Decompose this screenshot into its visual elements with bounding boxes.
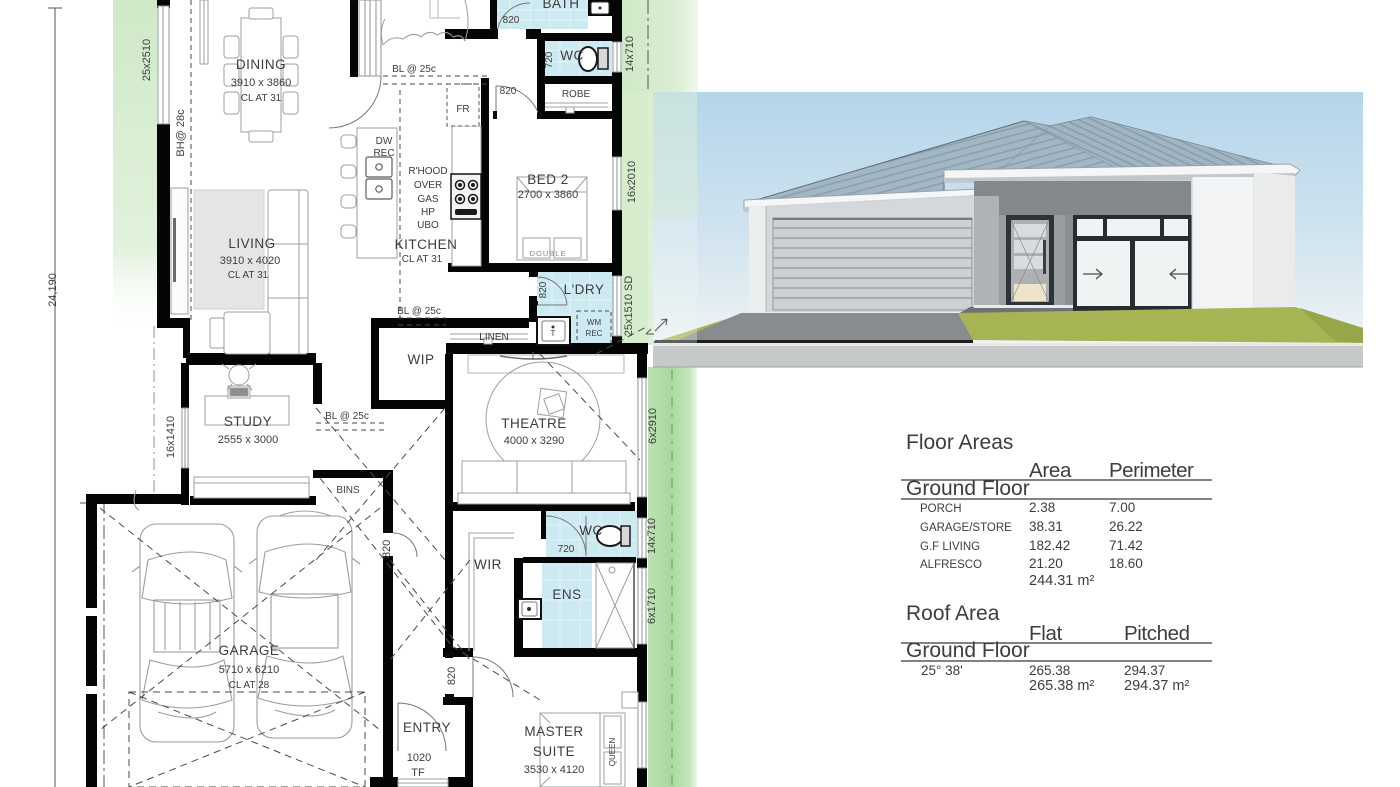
svg-text:265.38 m²: 265.38 m² xyxy=(1029,678,1094,694)
svg-text:26.22: 26.22 xyxy=(1109,519,1143,534)
svg-text:WIR: WIR xyxy=(474,557,502,572)
svg-text:ALFRESCO: ALFRESCO xyxy=(920,559,982,571)
svg-text:REC: REC xyxy=(373,148,394,159)
svg-text:3530 x 4120: 3530 x 4120 xyxy=(524,764,585,776)
svg-text:71.42: 71.42 xyxy=(1109,538,1143,553)
svg-text:Floor Areas: Floor Areas xyxy=(906,431,1013,454)
svg-text:244.31 m²: 244.31 m² xyxy=(1029,573,1094,589)
svg-text:BH@ 28c: BH@ 28c xyxy=(175,109,187,157)
svg-text:2700 x 3860: 2700 x 3860 xyxy=(518,189,579,201)
svg-text:5710 x 6210: 5710 x 6210 xyxy=(219,664,280,676)
svg-text:14x710: 14x710 xyxy=(646,518,658,554)
svg-text:LIVING: LIVING xyxy=(228,236,275,251)
svg-text:R'HOOD: R'HOOD xyxy=(408,166,447,177)
svg-text:DOUBLE: DOUBLE xyxy=(530,249,567,258)
svg-text:CL AT 31: CL AT 31 xyxy=(241,93,282,104)
svg-text:6x2910: 6x2910 xyxy=(647,408,659,444)
svg-text:STUDY: STUDY xyxy=(224,414,272,429)
svg-text:QUEEN: QUEEN xyxy=(608,738,617,767)
svg-text:820: 820 xyxy=(503,15,520,26)
svg-text:MASTER: MASTER xyxy=(524,724,583,739)
svg-text:3910 x 4020: 3910 x 4020 xyxy=(220,255,281,267)
svg-text:265.38: 265.38 xyxy=(1029,663,1070,678)
svg-text:1020: 1020 xyxy=(407,752,431,764)
svg-text:LINEN: LINEN xyxy=(479,332,508,343)
svg-text:24,190: 24,190 xyxy=(47,273,59,307)
svg-text:14x710: 14x710 xyxy=(624,36,636,72)
svg-text:HP: HP xyxy=(421,207,435,218)
svg-text:UBO: UBO xyxy=(417,220,439,231)
svg-text:25° 38': 25° 38' xyxy=(921,663,963,678)
svg-text:21.20: 21.20 xyxy=(1029,556,1063,571)
svg-text:CL AT 31: CL AT 31 xyxy=(228,270,269,281)
svg-text:25x1510 SD: 25x1510 SD xyxy=(623,276,635,337)
svg-text:720: 720 xyxy=(544,51,555,68)
svg-text:Pitched: Pitched xyxy=(1124,622,1190,645)
svg-text:GARAGE/STORE: GARAGE/STORE xyxy=(920,522,1012,534)
svg-text:GARAGE: GARAGE xyxy=(219,643,280,658)
svg-text:WIP: WIP xyxy=(408,352,435,367)
svg-text:2555 x 3000: 2555 x 3000 xyxy=(218,434,279,446)
svg-text:ENTRY: ENTRY xyxy=(403,720,451,735)
svg-text:16x2010: 16x2010 xyxy=(626,161,638,203)
svg-text:REC: REC xyxy=(586,329,603,338)
svg-text:DINING: DINING xyxy=(236,57,286,72)
svg-text:820: 820 xyxy=(538,281,549,298)
svg-text:BL @ 25c: BL @ 25c xyxy=(392,64,436,75)
svg-text:Ground Floor: Ground Floor xyxy=(906,477,1030,500)
svg-text:WC: WC xyxy=(560,48,584,63)
svg-text:Roof Area: Roof Area xyxy=(906,602,1000,625)
svg-text:TF: TF xyxy=(411,767,425,779)
svg-text:720: 720 xyxy=(558,544,575,555)
svg-text:2.38: 2.38 xyxy=(1029,500,1055,515)
svg-text:OVER: OVER xyxy=(414,180,442,191)
svg-text:182.42: 182.42 xyxy=(1029,538,1070,553)
svg-text:T: T xyxy=(551,329,556,338)
svg-text:Flat: Flat xyxy=(1029,622,1063,645)
svg-text:L'DRY: L'DRY xyxy=(564,282,605,297)
svg-text:6x1710: 6x1710 xyxy=(646,588,658,624)
svg-text:ROBE: ROBE xyxy=(562,89,591,100)
svg-text:16x1410: 16x1410 xyxy=(165,416,177,458)
svg-text:FR: FR xyxy=(456,104,469,115)
svg-text:820: 820 xyxy=(500,86,517,97)
svg-text:38.31: 38.31 xyxy=(1029,519,1063,534)
svg-text:25x2510: 25x2510 xyxy=(141,39,153,81)
svg-text:WC: WC xyxy=(579,523,603,538)
svg-text:820: 820 xyxy=(381,540,393,558)
svg-text:G.F LIVING: G.F LIVING xyxy=(920,541,980,553)
svg-text:18.60: 18.60 xyxy=(1109,556,1143,571)
svg-text:Perimeter: Perimeter xyxy=(1109,459,1194,482)
svg-text:4000 x 3290: 4000 x 3290 xyxy=(504,435,565,447)
svg-text:Area: Area xyxy=(1029,459,1072,482)
svg-text:GAS: GAS xyxy=(417,194,438,205)
svg-text:WM: WM xyxy=(587,318,602,327)
svg-text:BL @ 25c: BL @ 25c xyxy=(397,306,441,317)
svg-text:820: 820 xyxy=(446,667,458,685)
svg-text:3910 x 3860: 3910 x 3860 xyxy=(231,77,292,89)
svg-text:PORCH: PORCH xyxy=(920,503,962,515)
svg-text:SUITE: SUITE xyxy=(533,744,575,759)
svg-text:THEATRE: THEATRE xyxy=(501,416,567,431)
svg-text:CL AT 31: CL AT 31 xyxy=(402,254,443,265)
svg-text:ENS: ENS xyxy=(552,587,581,602)
svg-text:BL @ 25c: BL @ 25c xyxy=(325,411,369,422)
svg-text:294.37 m²: 294.37 m² xyxy=(1124,678,1189,694)
svg-text:CL AT 28: CL AT 28 xyxy=(229,680,270,691)
svg-text:294.37: 294.37 xyxy=(1124,663,1165,678)
svg-text:BATH: BATH xyxy=(542,0,579,11)
svg-text:BED 2: BED 2 xyxy=(527,172,569,187)
svg-text:Ground Floor: Ground Floor xyxy=(906,639,1030,662)
svg-text:BINS: BINS xyxy=(336,485,360,496)
svg-text:KITCHEN: KITCHEN xyxy=(395,237,458,252)
svg-text:DW: DW xyxy=(376,136,393,147)
svg-text:7.00: 7.00 xyxy=(1109,500,1135,515)
